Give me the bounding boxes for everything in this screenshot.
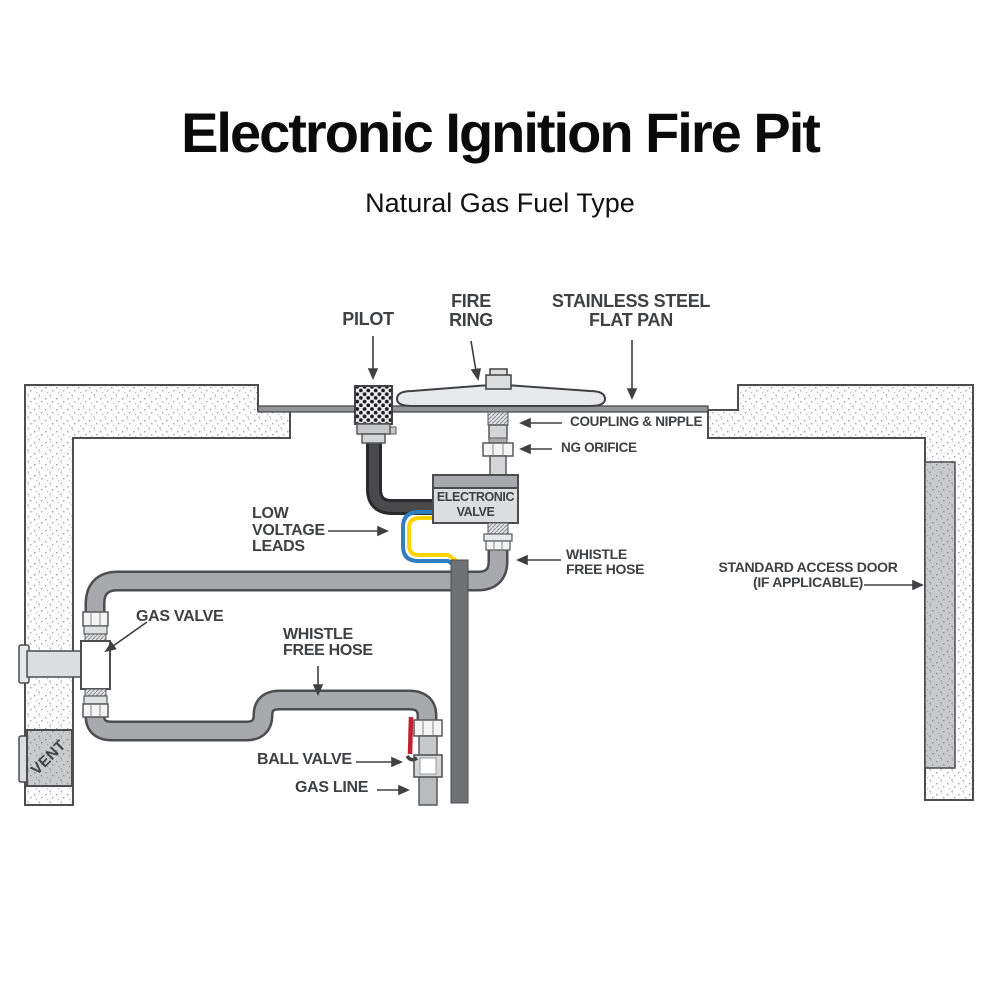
- arrow-coupling-nipple: [521, 419, 562, 427]
- wire-yellow: [409, 518, 458, 562]
- low-voltage-leads-label: LOW VOLTAGE LEADS: [252, 506, 325, 556]
- gas-valve-label: GAS VALVE: [136, 609, 223, 626]
- arrow-ng-orifice: [521, 445, 552, 453]
- fire-pit-diagram-page: Electronic Ignition Fire Pit Natural Gas…: [0, 0, 1000, 1000]
- standard-access-door-label: STANDARD ACCESS DOOR (IF APPLICABLE): [712, 560, 904, 590]
- arrow-low-voltage-leads: [328, 527, 387, 535]
- ball-valve-label: BALL VALVE: [257, 752, 352, 769]
- electronic-valve-label: ELECTRONIC VALVE: [433, 490, 518, 520]
- gas-line-label: GAS LINE: [295, 780, 368, 797]
- whistle-free-hose-lower-label: WHISTLE FREE HOSE: [283, 627, 373, 659]
- whistle-free-hose-lower: [95, 700, 427, 731]
- access-door-panel: [925, 462, 955, 768]
- pilot-label: PILOT: [330, 310, 406, 329]
- gas-valve-body: [81, 641, 110, 689]
- ball-valve-red-handle: [410, 717, 411, 754]
- arrow-whistle-hose-upper: [518, 556, 561, 564]
- coupling-nipple-label: COUPLING & NIPPLE: [570, 415, 702, 429]
- ball-valve-assembly: [407, 717, 442, 805]
- arrow-gas-valve: [106, 622, 147, 651]
- pilot-head: [355, 386, 392, 424]
- arrow-fire-ring: [471, 341, 480, 379]
- flat-pan-label: STAINLESS STEEL FLAT PAN: [538, 292, 724, 330]
- pilot-burner: [355, 386, 396, 443]
- arrow-pilot: [369, 336, 377, 378]
- gas-line-pipe: [419, 776, 437, 805]
- ng-orifice-label: NG ORIFICE: [561, 441, 637, 455]
- arrow-ball-valve: [356, 758, 401, 766]
- coupling-and-nipple: [488, 412, 508, 443]
- arrow-gas-line: [377, 786, 408, 794]
- wire-conduit: [451, 560, 468, 803]
- fire-ring-hub: [486, 375, 511, 389]
- fire-ring-label: FIRE RING: [430, 292, 512, 330]
- whistle-free-hose-upper-label: WHISTLE FREE HOSE: [566, 547, 644, 577]
- gas-valve-key: [27, 651, 81, 677]
- arrow-flat-pan: [628, 340, 636, 398]
- pilot-gas-hose: [374, 440, 438, 507]
- fire-ring: [397, 369, 605, 406]
- ng-orifice-fitting: [483, 443, 513, 475]
